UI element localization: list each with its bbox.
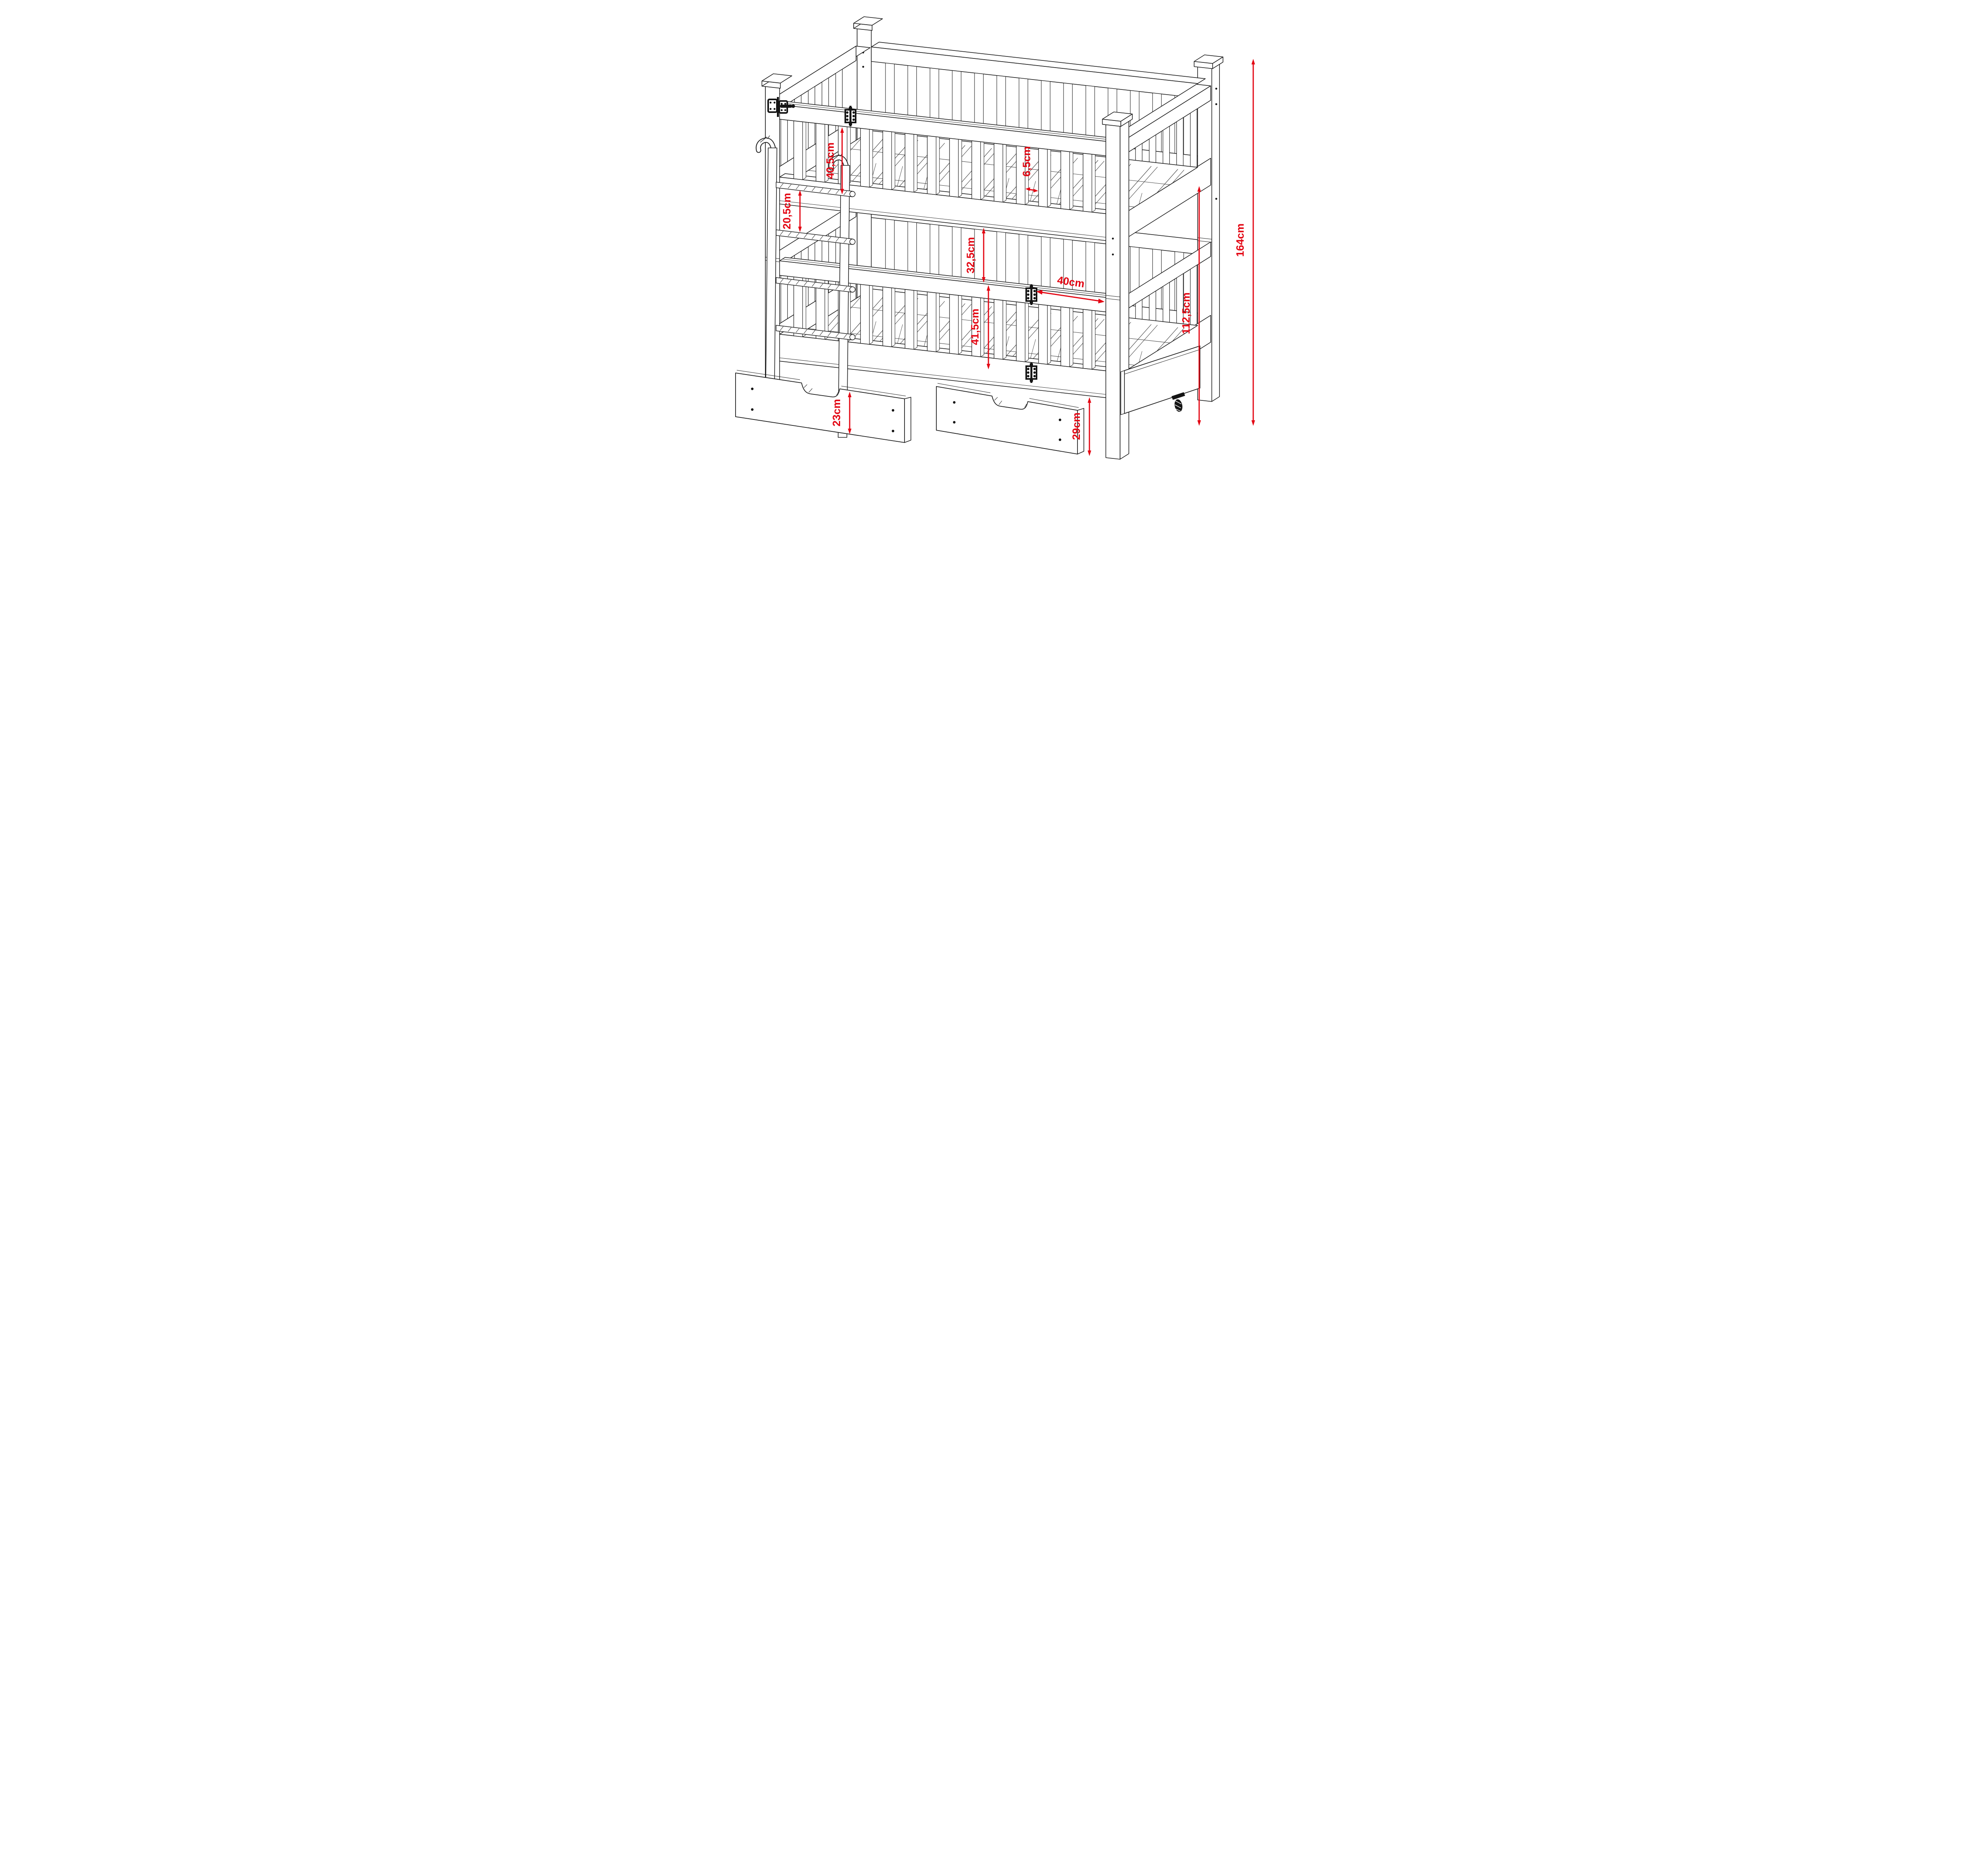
dimension-label: 29cm — [1070, 412, 1082, 440]
dimension-label: 40cm — [1056, 274, 1085, 290]
dimension-label: 164cm — [1234, 223, 1246, 257]
dimension-label: 32,5cm — [965, 237, 977, 274]
technical-drawing-page: 40,5cm 6,5cm 20,5cm 32,5cm 112,5cm 164cm… — [676, 0, 1312, 466]
dimension-label: 6,5cm — [1021, 146, 1033, 177]
bunk-bed-dimension-diagram: 40,5cm 6,5cm 20,5cm 32,5cm 112,5cm 164cm… — [676, 0, 1312, 466]
dimension-label: 40,5cm — [824, 142, 836, 179]
dimension-label: 112,5cm — [1180, 292, 1192, 334]
dimension-total-height: 164cm — [1234, 59, 1255, 426]
dimension-label: 41,5cm — [969, 309, 981, 345]
bunk-bed-line-art — [736, 17, 1223, 459]
dimension-label: 20,5cm — [781, 193, 793, 229]
dimension-label: 23cm — [831, 399, 843, 426]
front-drawer-right — [936, 383, 1084, 454]
front-drawer-left — [736, 370, 911, 443]
